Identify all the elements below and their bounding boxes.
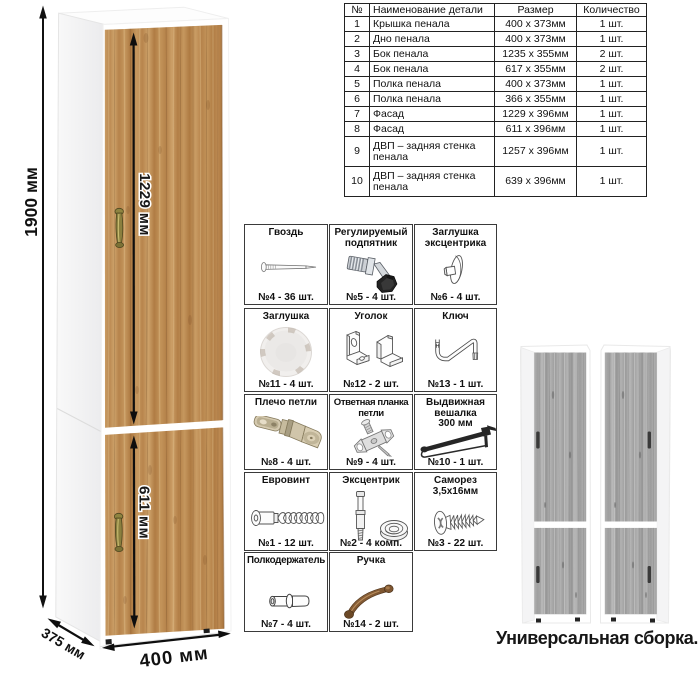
svg-text:1900 мм: 1900 мм [21, 167, 41, 237]
svg-text:611 мм: 611 мм [135, 486, 152, 539]
svg-text:400 мм: 400 мм [138, 642, 209, 671]
svg-text:1229 мм: 1229 мм [136, 173, 153, 236]
